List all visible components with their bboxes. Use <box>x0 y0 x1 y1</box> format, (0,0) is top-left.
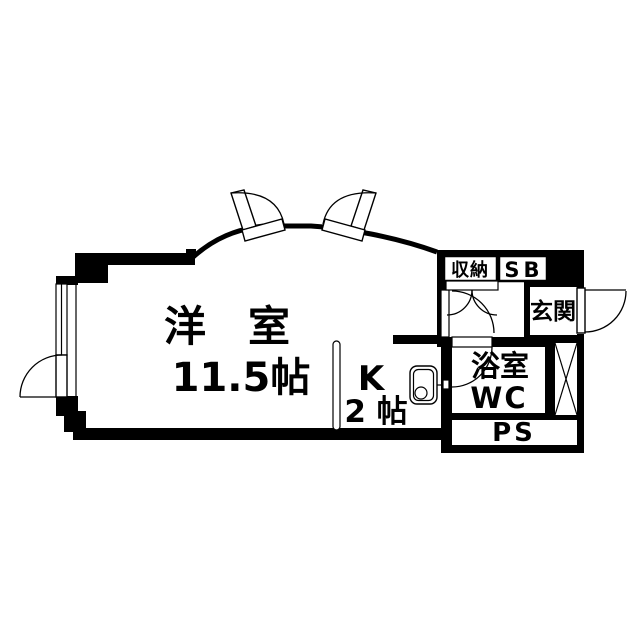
label-bathroom-wc: WC <box>470 381 527 415</box>
floorplan-page: 洋 室 11.5帖 K 2 帖 収納 SB 玄関 浴室 WC PS <box>0 0 640 640</box>
label-pipe-space: PS <box>492 418 536 448</box>
floorplan-svg: 洋 室 11.5帖 K 2 帖 収納 SB 玄関 浴室 WC PS <box>0 0 640 640</box>
label-kitchen: K <box>358 359 386 399</box>
faucet-icon <box>443 380 449 389</box>
bathroom-door-opening <box>452 337 492 347</box>
label-entrance: 玄関 <box>530 298 576 325</box>
label-shoe-box: SB <box>504 258 543 282</box>
label-kitchen-size: 2 帖 <box>344 394 407 430</box>
closet-front <box>446 281 498 290</box>
label-western-room-size: 11.5帖 <box>172 355 311 401</box>
label-western-room: 洋 室 <box>164 302 290 351</box>
label-bathroom: 浴室 <box>471 349 529 383</box>
room-hallway-opening <box>441 290 449 337</box>
kitchen-partition <box>333 341 340 430</box>
label-storage: 収納 <box>451 259 489 281</box>
